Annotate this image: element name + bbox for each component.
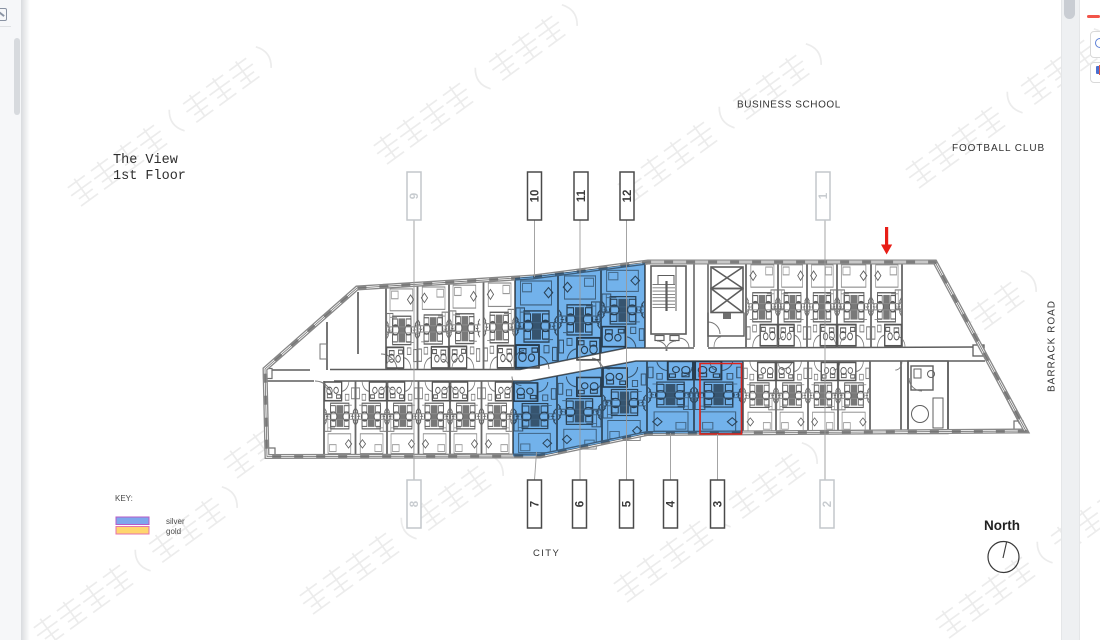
svg-text:2: 2 (822, 501, 834, 507)
svg-text:4: 4 (666, 500, 678, 507)
svg-text:8: 8 (409, 500, 421, 507)
svg-text:12: 12 (622, 190, 634, 203)
svg-text:5: 5 (622, 500, 634, 507)
svg-text:7: 7 (530, 501, 542, 507)
svg-text:CITY: CITY (533, 548, 560, 559)
svg-text:The View: The View (113, 153, 178, 168)
svg-text:gold: gold (166, 527, 181, 536)
svg-text:3: 3 (713, 501, 725, 507)
svg-text:6: 6 (575, 501, 587, 507)
svg-text:BUSINESS SCHOOL: BUSINESS SCHOOL (737, 100, 841, 111)
svg-text:KEY:: KEY: (115, 494, 133, 503)
svg-text:silver: silver (166, 517, 185, 526)
svg-text:1: 1 (818, 192, 830, 199)
svg-text:North: North (984, 518, 1020, 533)
svg-text:11: 11 (576, 189, 588, 202)
svg-text:BARRACK ROAD: BARRACK ROAD (1047, 300, 1058, 392)
svg-text:1st Floor: 1st Floor (113, 169, 186, 184)
svg-text:FOOTBALL CLUB: FOOTBALL CLUB (952, 143, 1045, 154)
svg-text:10: 10 (530, 190, 542, 203)
svg-text:9: 9 (409, 193, 421, 199)
